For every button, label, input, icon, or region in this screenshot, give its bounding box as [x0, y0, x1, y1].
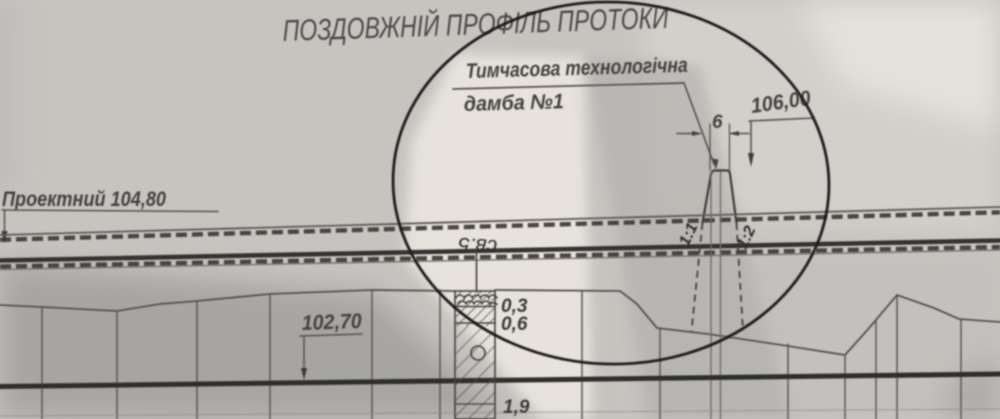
svg-text:Проектний 104,80: Проектний 104,80 — [2, 188, 166, 211]
svg-text:1,9: 1,9 — [503, 397, 530, 418]
svg-text:102,70: 102,70 — [301, 310, 362, 335]
svg-text:дамба №1: дамба №1 — [463, 90, 564, 116]
svg-text:0,6: 0,6 — [501, 314, 528, 335]
svg-text:6: 6 — [712, 112, 723, 133]
svg-text:св.5: св.5 — [457, 233, 498, 259]
